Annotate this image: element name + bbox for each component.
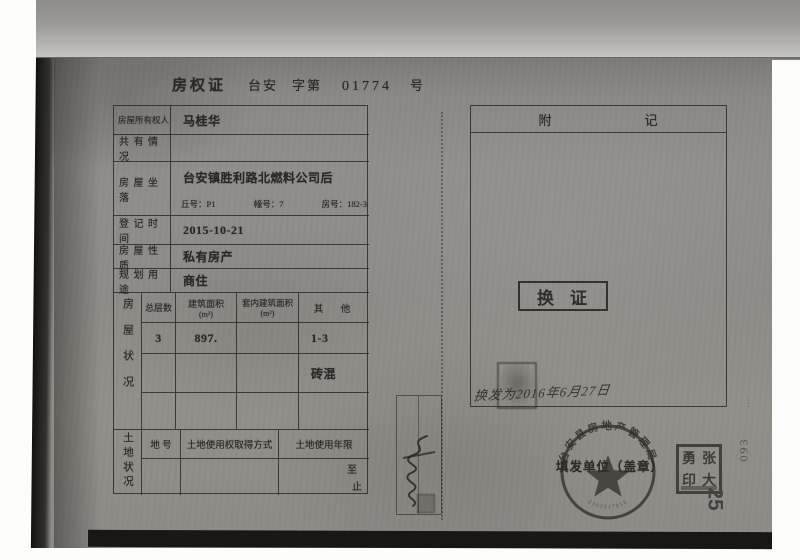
round-seal-numbers: 2103217018 — [587, 499, 629, 510]
plot-number: 丘号：P1 — [181, 198, 215, 210]
zidi: 字第 — [292, 75, 322, 94]
house-condition-side-label: 房屋状况 — [114, 288, 141, 434]
header-other: 其 他 — [314, 301, 355, 315]
scanned-certificate: 房权证 台安 字第 01774 号 房屋所有权人 马桂华 共 有 情 况 房 屋… — [0, 0, 800, 560]
table-cell — [142, 459, 181, 495]
table-cell — [142, 393, 176, 430]
term-end: 止 — [352, 478, 362, 493]
total-floors-value: 3 — [142, 323, 176, 354]
file-number: 093 — [737, 418, 752, 462]
issuer-label: 填发单位（盖章） — [556, 456, 664, 475]
other-value-1: 1-3 — [299, 323, 369, 354]
serial-number: 01774 — [342, 79, 392, 95]
planned-usage-value: 商住 — [171, 269, 369, 293]
page-number: 25 — [703, 487, 727, 510]
name-seal-char: 勇 — [679, 447, 699, 469]
header-total-floors: 总层数 — [145, 301, 172, 314]
spine-stamp-smudge — [417, 494, 435, 513]
land-condition-side-label: 土地状况 — [114, 428, 141, 497]
header-land-right-method: 土地使用权取得方式 — [187, 437, 273, 451]
owner-label: 房屋所有权人 — [114, 106, 171, 135]
svg-text:2103217018: 2103217018 — [587, 499, 629, 510]
header-building-area-unit: (m²) — [199, 310, 213, 319]
term-to: 至 — [347, 461, 357, 476]
table-cell — [237, 354, 299, 393]
table-cell — [299, 393, 369, 430]
other-value-2: 砖混 — [299, 354, 369, 393]
location-label: 房 屋 坐 落 — [114, 162, 171, 216]
table-cell — [142, 354, 176, 393]
header-building-area: 建筑面积 — [188, 297, 224, 310]
table-cell — [176, 393, 237, 430]
location-value: 台安镇胜利路北燃料公司后 — [183, 169, 333, 186]
page-left-fade — [54, 58, 100, 548]
hao: 号 — [410, 75, 425, 94]
building-area-value: 897. — [176, 323, 237, 354]
reg-date-value: 2015-10-21 — [171, 216, 369, 245]
table-cell — [237, 393, 299, 430]
scan-right-margin — [772, 60, 800, 560]
margin-dots: ··· — [744, 399, 754, 408]
header-inner-area-unit: (m²) — [261, 309, 275, 318]
page-bottom-shadow — [88, 530, 772, 549]
certificate-exchange-stamp: 换证 — [518, 281, 608, 311]
region: 台安 — [248, 75, 278, 94]
header-land-number: 地 号 — [150, 437, 171, 451]
owner-value: 马桂华 — [171, 106, 369, 135]
header-land-use-term: 土地使用年限 — [295, 437, 352, 451]
certificate-title: 房权证 台安 字第 01774 号 — [172, 74, 425, 94]
table-cell — [181, 459, 279, 495]
scan-top-band — [36, 0, 800, 60]
inner-area-value — [237, 323, 299, 354]
property-table: 房屋所有权人 马桂华 共 有 情 况 房 屋 坐 落 台安镇胜利路北燃料公司后 … — [113, 105, 368, 494]
name-seal-char: 张 — [699, 447, 719, 469]
remarks-header-right: 记 — [645, 110, 659, 129]
header-inner-area: 套内建筑面积 — [242, 297, 293, 309]
remarks-header-left: 附 — [538, 110, 552, 129]
house-nature-value: 私有房产 — [171, 245, 369, 269]
co-ownership-label: 共 有 情 况 — [114, 135, 171, 162]
room-number: 房号：182-3 — [322, 198, 367, 210]
table-cell — [176, 354, 237, 393]
building-number: 幢号：7 — [254, 198, 284, 210]
doc-type: 房权证 — [172, 74, 226, 95]
co-ownership-value — [171, 135, 369, 162]
